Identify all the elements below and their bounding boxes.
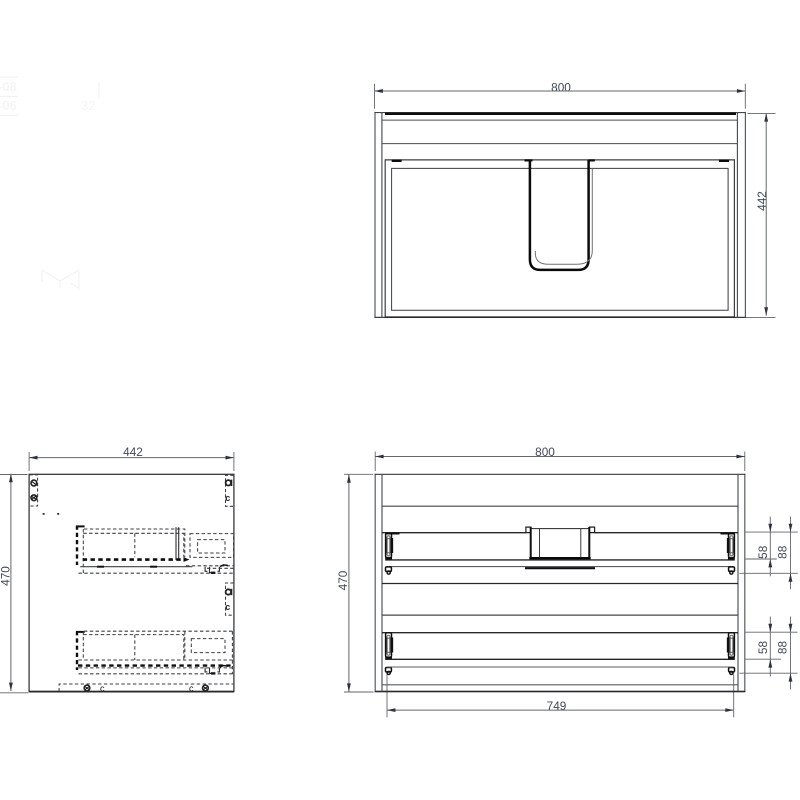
svg-text:c: c: [189, 684, 194, 694]
svg-text:442: 442: [123, 445, 143, 459]
svg-text:749: 749: [547, 699, 567, 713]
svg-text:c: c: [100, 684, 105, 694]
svg-text:-06: -06: [0, 98, 17, 113]
svg-text:c: c: [225, 602, 230, 612]
svg-text:58: 58: [756, 641, 770, 655]
svg-text:470: 470: [336, 570, 350, 590]
svg-text:32: 32: [81, 98, 95, 113]
svg-text:800: 800: [551, 80, 571, 94]
svg-text:88: 88: [775, 545, 789, 559]
svg-text:c: c: [225, 493, 230, 503]
svg-text:-08: -08: [0, 79, 17, 94]
svg-text:88: 88: [775, 641, 789, 655]
svg-text:58: 58: [756, 545, 770, 559]
